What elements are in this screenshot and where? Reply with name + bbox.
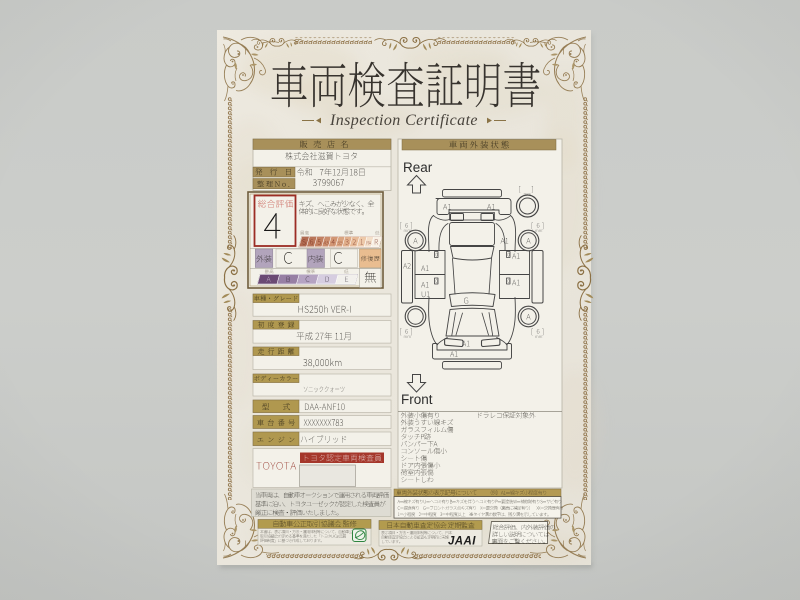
svg-text:JAAI: JAAI bbox=[448, 536, 476, 548]
svg-text:Front: Front bbox=[401, 392, 433, 407]
svg-text:Rear: Rear bbox=[403, 160, 433, 175]
svg-text:Inspection Certificate: Inspection Certificate bbox=[329, 112, 478, 129]
